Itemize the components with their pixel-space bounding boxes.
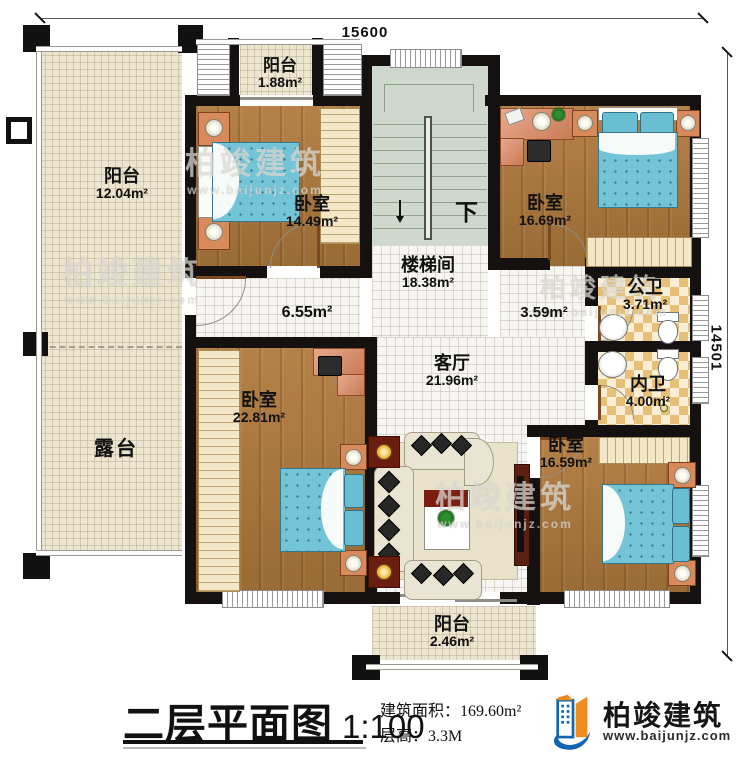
lamp [577, 115, 593, 131]
pillow [344, 510, 364, 546]
desk-return [500, 138, 524, 166]
balcony-south-rail [366, 664, 538, 670]
lamp [674, 565, 691, 582]
wall [185, 337, 377, 348]
desk-return [337, 374, 365, 396]
lamp [376, 444, 392, 460]
title-underline-shadow [123, 747, 366, 749]
window [323, 44, 362, 96]
wall [185, 315, 196, 604]
floor-height-line: 层高：3.3M [380, 724, 521, 749]
lamp [205, 119, 223, 137]
sink [599, 314, 628, 341]
lamp [680, 115, 696, 131]
room-label-terrace: 露台 [94, 438, 138, 460]
terrace-rail-top [36, 46, 182, 52]
lamp [345, 449, 362, 466]
wall [527, 425, 540, 437]
dimension-top-label: 15600 [342, 24, 389, 41]
stair-arrow-head [396, 216, 404, 223]
wardrobe [198, 350, 240, 592]
wall [500, 592, 520, 604]
table-runner [424, 490, 468, 507]
computer-monitor [527, 140, 551, 162]
wall [585, 341, 701, 352]
window [564, 590, 670, 608]
room-label-stairwell: 楼梯间 18.38m² [401, 255, 455, 291]
wall [320, 266, 372, 278]
wall [375, 592, 400, 604]
building-info: 建筑面积：169.60m² 层高：3.3M [380, 699, 521, 749]
stair-down-label: 下 [455, 193, 478, 227]
room-label-balcony-south: 阳台 2.46m² [430, 614, 474, 650]
brand-website: www.baijunjz.com [603, 728, 731, 743]
wall [185, 95, 196, 278]
lamp [205, 223, 223, 241]
wall [312, 38, 323, 95]
room-label-corridor: 3.59m² [520, 305, 568, 322]
wall [585, 425, 701, 437]
window [692, 357, 709, 404]
staircase-rail [424, 116, 432, 240]
room-label-bedroom-ne: 卧室 16.69m² [519, 193, 571, 229]
floor-plan: 柏竣建筑 www.baijunjz.com 柏竣建筑 www.baijunjz.… [0, 0, 750, 759]
window [692, 485, 709, 557]
room-label-balcony-north: 阳台 1.88m² [258, 56, 302, 91]
bed-sheet [599, 133, 675, 155]
pillow [672, 488, 690, 524]
window [222, 590, 324, 608]
pillow [672, 526, 690, 562]
living-floor-upper [377, 337, 585, 425]
window [692, 295, 709, 341]
computer-monitor [318, 356, 342, 376]
pillow [602, 112, 638, 134]
room-label-balcony-left: 阳台 12.04m² [96, 166, 148, 202]
wall [488, 258, 550, 270]
dimension-right-label: 14501 [708, 325, 725, 372]
wardrobe [586, 237, 692, 267]
balcony-north-slider [240, 97, 313, 100]
pillow [344, 474, 364, 508]
stair-direction-arrow [399, 200, 401, 216]
brand-logo-icon [546, 688, 600, 757]
terrace-dashed-line [40, 346, 182, 348]
lamp [532, 112, 551, 131]
room-label-bedroom-sw: 卧室 22.81m² [233, 390, 285, 426]
terrace-rail-left [36, 46, 42, 554]
tv [517, 476, 524, 552]
terrace-floor [38, 48, 182, 550]
pillow [640, 112, 674, 134]
column [23, 553, 50, 579]
plant [552, 108, 565, 121]
sink [598, 351, 627, 378]
room-label-bedroom-se: 卧室 16.59m² [540, 435, 592, 471]
window [197, 44, 230, 96]
room-label-bath-public: 公卫 3.71m² [623, 277, 667, 313]
wall [485, 95, 701, 106]
title-underline [123, 740, 363, 744]
wardrobe [598, 437, 690, 464]
dimension-line-top [40, 18, 703, 19]
window [692, 138, 709, 238]
lamp [674, 467, 691, 484]
terrace-rail-bottom [36, 550, 182, 556]
lamp [376, 564, 392, 580]
dimension-line-right [727, 52, 728, 656]
room-label-living: 客厅 21.96m² [426, 353, 478, 389]
room-label-bath-inner: 内卫 4.00m² [626, 374, 670, 410]
toilet-bowl [658, 320, 678, 344]
room-label-hall: 6.55m² [282, 304, 333, 322]
building-area-line: 建筑面积：169.60m² [380, 699, 521, 724]
plant [438, 510, 454, 526]
window [390, 49, 462, 68]
wall [585, 341, 598, 385]
left-edge-window [6, 117, 32, 144]
wall [488, 55, 500, 266]
lamp [345, 555, 362, 572]
room-label-bedroom-nw: 卧室 14.49m² [286, 194, 338, 230]
